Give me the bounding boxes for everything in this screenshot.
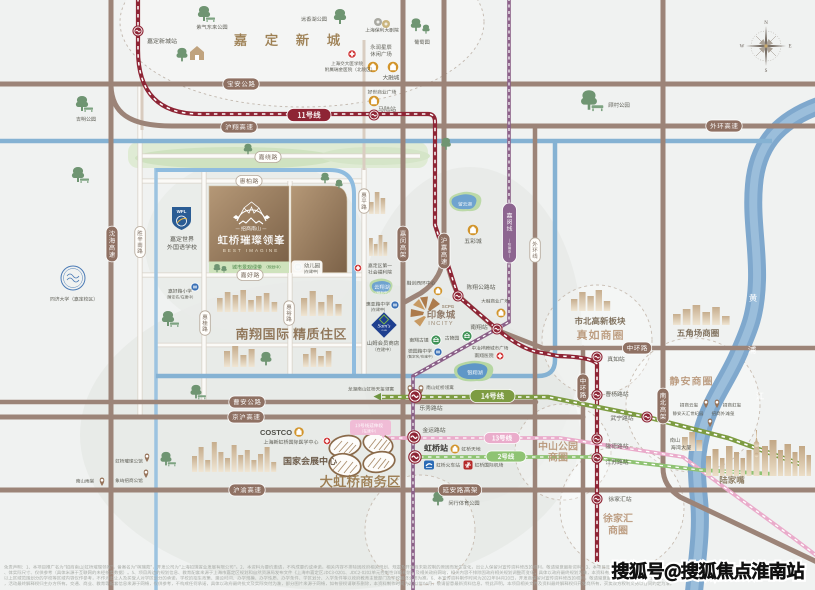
svg-text:S: S [765, 69, 768, 74]
svg-text:BEST IMAGINE: BEST IMAGINE [223, 248, 280, 253]
svg-text:COSTCO: COSTCO [260, 428, 292, 437]
svg-text:INCITY: INCITY [428, 321, 454, 327]
svg-text:E: E [788, 45, 791, 50]
svg-text:N: N [764, 21, 768, 26]
svg-text:W: W [740, 45, 745, 50]
svg-text:CLUB: CLUB [381, 330, 387, 332]
svg-text:WFL: WFL [177, 209, 187, 214]
svg-text:SCPG: SCPG [442, 304, 455, 309]
svg-text:Sam's: Sam's [378, 324, 391, 330]
